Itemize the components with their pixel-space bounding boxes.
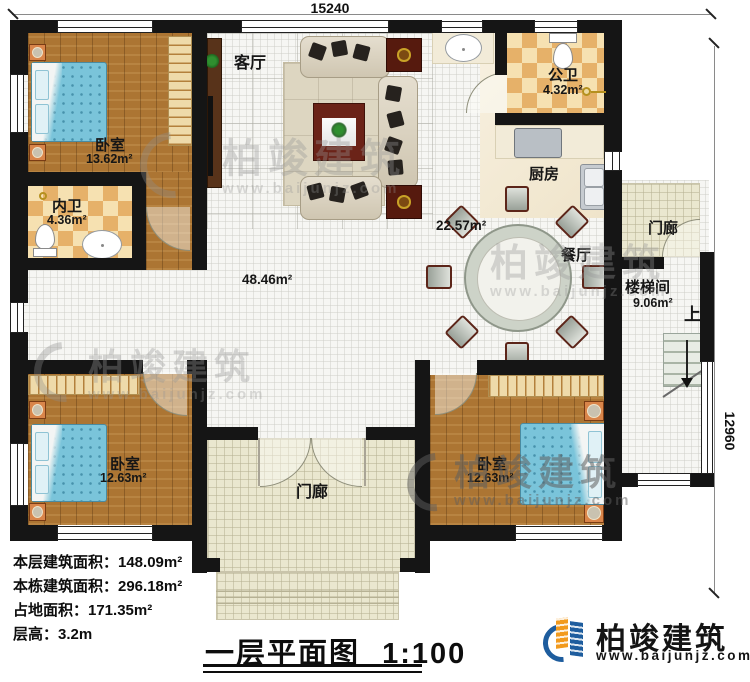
stairs-up-label: 上 [684, 305, 701, 325]
room-area-bedroom1: 13.62m² [86, 152, 133, 166]
switch-lead [591, 91, 606, 93]
nightstand [29, 401, 46, 419]
window [10, 302, 24, 333]
brand-logo-building-orange [556, 617, 568, 649]
area-hall: 48.46m² [242, 272, 292, 288]
switch-symbol [582, 87, 591, 96]
nightstand [29, 144, 46, 161]
wall [202, 558, 220, 572]
brand-logo-icon [543, 614, 591, 666]
wall [10, 258, 146, 270]
front-door-jamb [258, 438, 260, 486]
toilet-tank [549, 33, 577, 43]
stat-floor-area: 本层建筑面积：148.09m² [13, 551, 182, 572]
room-label-side-porch: 门廊 [648, 220, 678, 237]
toilet-bowl [35, 224, 55, 250]
toilet-tank [33, 248, 57, 257]
dining-chair [505, 186, 529, 212]
wash-basin [445, 34, 482, 62]
dining-table-top [477, 237, 561, 321]
dimension-line-top [12, 14, 712, 15]
wall [400, 558, 416, 572]
window [604, 151, 620, 171]
room-area-inner-bath: 4.36m² [47, 213, 87, 227]
wall [700, 267, 714, 362]
stat-land-area: 占地面积：171.35m² [13, 599, 152, 620]
window [701, 361, 713, 474]
wall [477, 360, 607, 375]
room-area-bedroom-br: 12.63m² [467, 471, 514, 485]
floor-drain [39, 192, 47, 200]
wall [700, 252, 714, 267]
front-porch-floor [207, 438, 415, 572]
wall [152, 525, 207, 541]
pillow [35, 432, 49, 461]
window [534, 21, 578, 33]
sofa-cushion [385, 85, 402, 102]
brand-logo-building-blue [570, 621, 583, 657]
title-underline [203, 671, 422, 673]
wall [132, 172, 146, 270]
window [57, 526, 153, 540]
side-table [386, 38, 422, 72]
wall [10, 525, 58, 541]
nightstand [584, 401, 604, 421]
stat-building-area: 本栋建筑面积：296.18m² [13, 575, 182, 596]
toilet-bowl [553, 43, 573, 69]
room-label-living: 客厅 [234, 55, 266, 73]
sofa-cushion [387, 159, 403, 175]
sink-basin [584, 187, 604, 206]
window [515, 526, 603, 540]
wall [192, 363, 207, 573]
stairs-direction-line [686, 340, 688, 378]
dimension-top-value: 15240 [300, 0, 360, 16]
window [10, 74, 24, 133]
tv [208, 96, 213, 176]
sofa-cushion [329, 186, 346, 203]
title-underline [203, 664, 422, 667]
floor-plan: 卧室 13.62m² 内卫 4.36m² 客厅 公卫 4.32m² 厨房 22.… [0, 0, 750, 682]
wall [10, 332, 28, 444]
front-door-jamb [364, 438, 366, 486]
stat-floor-height: 层高：3.2m [13, 623, 92, 644]
room-label-dining: 餐厅 [561, 247, 591, 264]
nightstand [29, 503, 46, 521]
wall [10, 20, 28, 75]
stove [514, 128, 562, 158]
wall [602, 525, 622, 541]
sofa-cushion [331, 40, 348, 57]
wall [10, 172, 146, 186]
wall [192, 20, 207, 270]
nightstand [584, 503, 604, 523]
wall [430, 525, 516, 541]
window [10, 443, 24, 506]
wall [388, 20, 442, 33]
room-label-stairwell: 楼梯间 [625, 279, 670, 296]
bed [520, 423, 606, 505]
bed [31, 62, 107, 142]
nightstand [29, 44, 46, 61]
pillow [35, 70, 49, 100]
pillow [35, 465, 49, 494]
sink-basin [584, 168, 604, 187]
room-label-front-porch: 门廊 [296, 484, 328, 502]
wall [10, 132, 28, 303]
wall [495, 20, 507, 75]
room-label-public-bath: 公卫 [548, 67, 578, 84]
wall [495, 113, 605, 125]
window [637, 473, 691, 486]
wall [620, 473, 638, 487]
wall [207, 427, 258, 440]
wall [415, 360, 430, 573]
pillow [35, 104, 49, 134]
dimension-line-right [714, 46, 715, 594]
room-area-bedroom-bl: 12.63m² [100, 471, 147, 485]
wall [604, 170, 622, 525]
pillow [588, 466, 602, 498]
dining-chair [426, 265, 452, 289]
window [441, 21, 483, 33]
plant [205, 54, 219, 68]
wall [10, 360, 143, 374]
dimension-right-value: 12960 [722, 400, 738, 462]
front-porch-step-lines [216, 590, 399, 604]
wall [482, 20, 535, 33]
side-table [386, 185, 422, 219]
wall [690, 473, 714, 487]
window [241, 20, 389, 33]
brand-url: www.baijunjz.com [596, 648, 750, 663]
wall [604, 20, 622, 152]
room-area-public-bath: 4.32m² [543, 83, 583, 97]
bathroom-sink [82, 230, 122, 259]
pillow [588, 431, 602, 463]
plant [331, 122, 347, 138]
room-area-stairwell: 9.06m² [633, 296, 673, 310]
wardrobe [28, 375, 140, 395]
stairs-direction-arrow [681, 378, 693, 388]
room-label-kitchen: 厨房 [529, 166, 559, 183]
window [57, 20, 153, 33]
coffee-table [313, 103, 365, 161]
wardrobe [168, 36, 192, 146]
wall [618, 257, 664, 269]
wardrobe [488, 375, 604, 397]
bed [31, 424, 107, 502]
area-kitchen-dining: 22.57m² [436, 218, 486, 234]
